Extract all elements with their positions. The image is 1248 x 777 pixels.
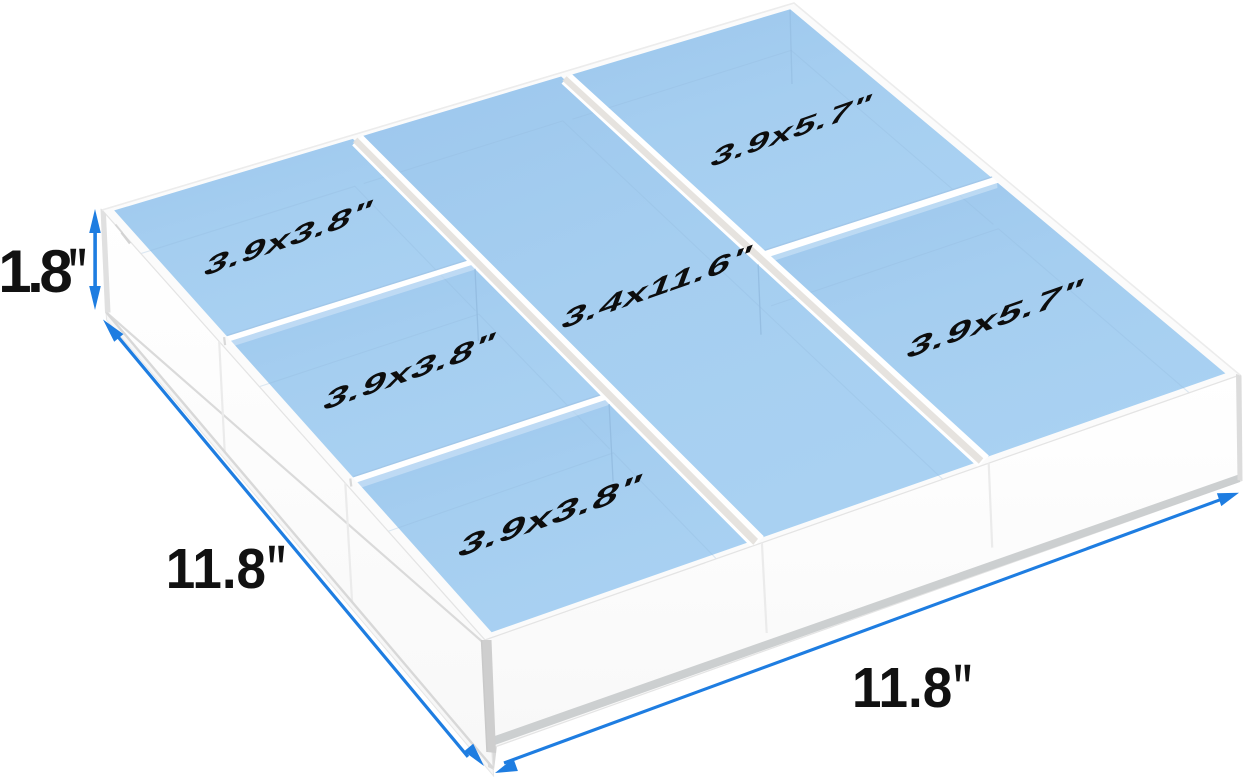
svg-text:1.8: 1.8 [0,238,71,305]
svg-text:11.8: 11.8 [166,536,266,600]
svg-text:11.8: 11.8 [852,655,952,719]
